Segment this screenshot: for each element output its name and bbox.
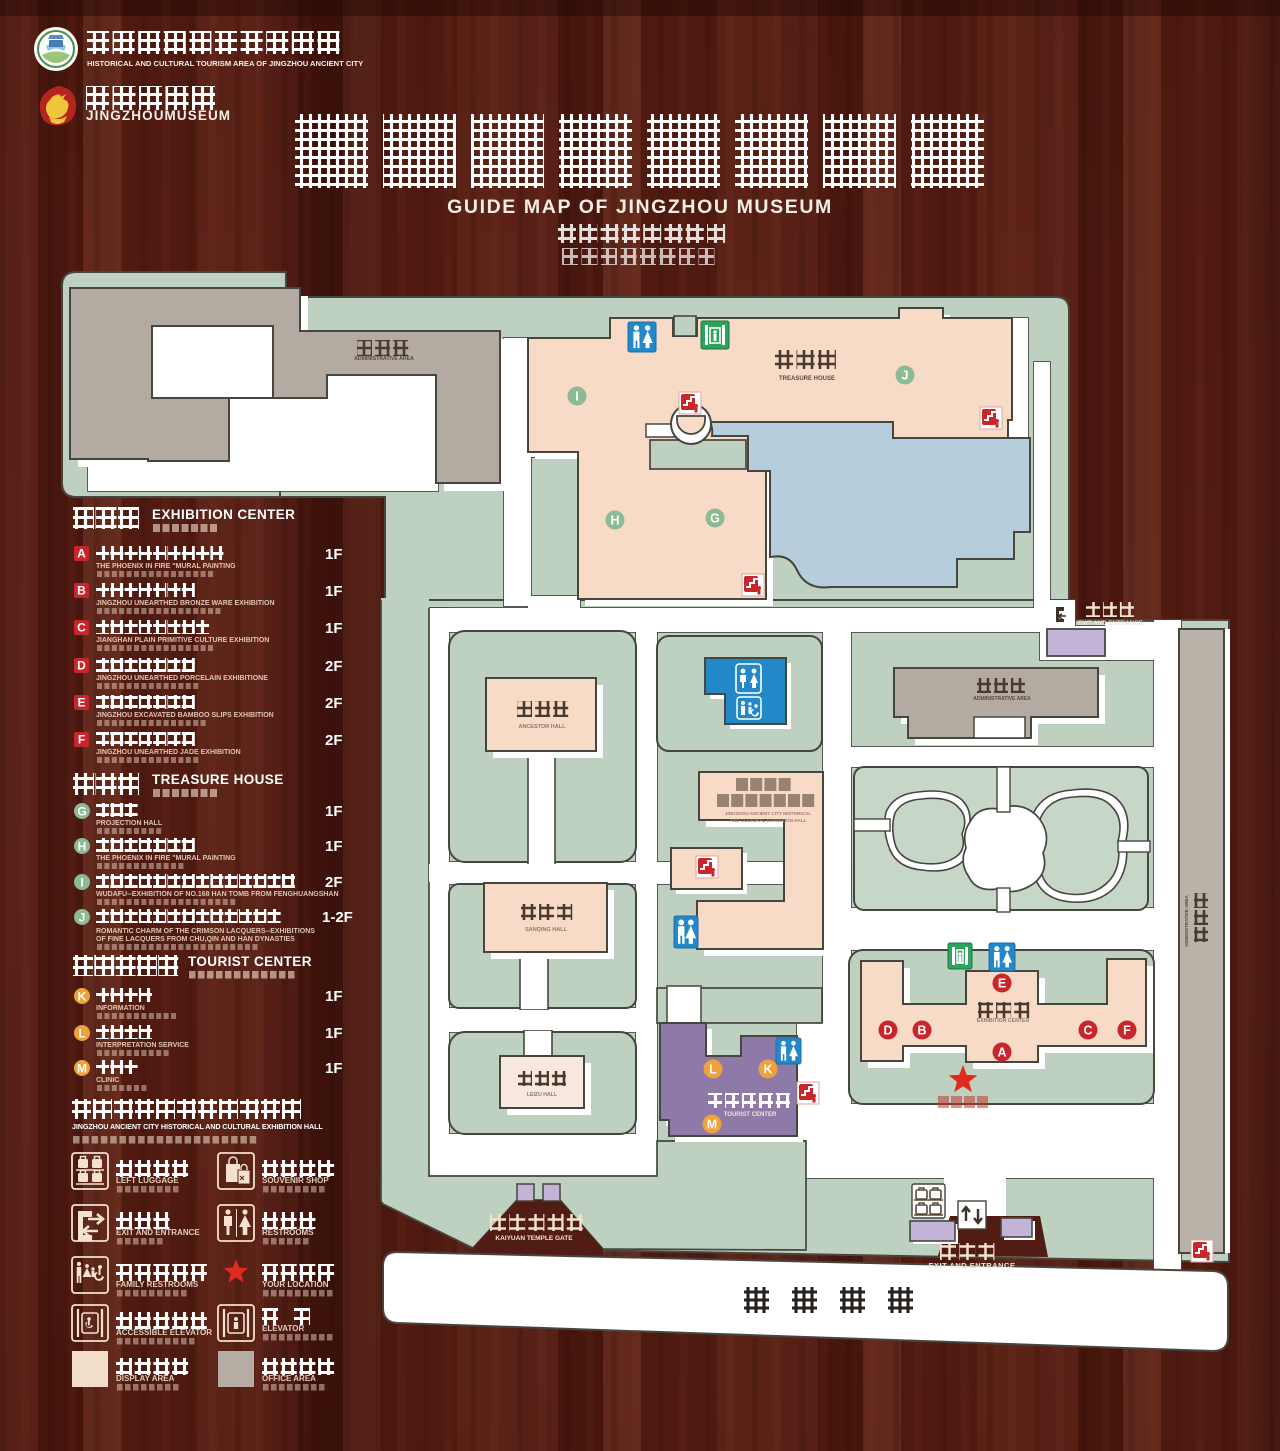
svg-text:WUDAFU--EXHIBITION OF NO.168 H: WUDAFU--EXHIBITION OF NO.168 HAN TOMB FR… xyxy=(96,891,339,898)
svg-text:SOUVENIR SHOP: SOUVENIR SHOP xyxy=(262,1176,329,1185)
svg-text:JINGZHOU EXCAVATED BAMBOO SLIP: JINGZHOU EXCAVATED BAMBOO SLIPS EXHIBITI… xyxy=(96,712,274,719)
svg-text:K: K xyxy=(78,989,87,1003)
svg-text:JINGZHOU UNEARTHED BRONZE WARE: JINGZHOU UNEARTHED BRONZE WARE EXHIBITIO… xyxy=(96,600,275,607)
svg-text:OF FINE LACQUERS FROM CHU,QIN: OF FINE LACQUERS FROM CHU,QIN AND HAN DY… xyxy=(96,936,295,943)
svg-text:2F: 2F xyxy=(325,658,343,675)
svg-text:TOURIST CENTER: TOURIST CENTER xyxy=(188,954,312,969)
svg-text:INFORMATION: INFORMATION xyxy=(96,1005,145,1012)
svg-text:A: A xyxy=(77,547,86,561)
svg-text:JINGZHOU UNEARTHED JADE EXHIBI: JINGZHOU UNEARTHED JADE EXHIBITION xyxy=(96,749,241,756)
svg-text:THE PHOENIX IN FIRE "MURAL PAI: THE PHOENIX IN FIRE "MURAL PAINTING xyxy=(96,855,236,862)
svg-text:D: D xyxy=(77,659,86,673)
svg-text:1F: 1F xyxy=(325,1025,343,1042)
svg-text:JINGZHOU UNEARTHED PORCELAIN E: JINGZHOU UNEARTHED PORCELAIN EXHIBITIONE xyxy=(96,675,268,682)
svg-text:ELEVATOR: ELEVATOR xyxy=(262,1324,304,1333)
svg-text:LEFT LUGGAGE: LEFT LUGGAGE xyxy=(116,1176,179,1185)
svg-text:EXHIBITION CENTER: EXHIBITION CENTER xyxy=(152,507,295,522)
svg-text:2F: 2F xyxy=(325,732,343,749)
svg-text:1F: 1F xyxy=(325,1060,343,1077)
svg-text:C: C xyxy=(77,621,86,635)
svg-text:M: M xyxy=(77,1061,87,1075)
svg-text:B: B xyxy=(77,584,86,598)
svg-text:1F: 1F xyxy=(325,838,343,855)
svg-text:FAMILY RESTROOMS: FAMILY RESTROOMS xyxy=(116,1280,199,1289)
svg-text:F: F xyxy=(78,733,85,747)
svg-text:YOUR LOCATION: YOUR LOCATION xyxy=(262,1280,329,1289)
svg-text:L: L xyxy=(78,1026,85,1040)
svg-text:H: H xyxy=(78,839,87,853)
svg-text:EXIT AND ENTRANCE: EXIT AND ENTRANCE xyxy=(116,1228,200,1237)
svg-text:1F: 1F xyxy=(325,546,343,563)
svg-text:DISPLAY AREA: DISPLAY AREA xyxy=(116,1374,175,1383)
svg-text:2F: 2F xyxy=(325,874,343,891)
svg-text:G: G xyxy=(77,804,86,818)
svg-text:ACCESSIBLE ELEVATOR: ACCESSIBLE ELEVATOR xyxy=(116,1328,212,1337)
svg-text:J: J xyxy=(79,910,86,924)
svg-text:ROMANTIC CHARM OF THE CRIMSON: ROMANTIC CHARM OF THE CRIMSON LACQUERS--… xyxy=(96,928,315,935)
svg-text:INTERPRETATION SERVICE: INTERPRETATION SERVICE xyxy=(96,1042,189,1049)
svg-text:1F: 1F xyxy=(325,988,343,1005)
svg-text:1F: 1F xyxy=(325,803,343,820)
svg-text:RESTROOMS: RESTROOMS xyxy=(262,1228,314,1237)
svg-text:THE PHOENIX IN FIRE "MURAL PAI: THE PHOENIX IN FIRE "MURAL PAINTING xyxy=(96,563,236,570)
svg-text:TREASURE HOUSE: TREASURE HOUSE xyxy=(152,772,284,787)
svg-text:1-2F: 1-2F xyxy=(322,909,353,926)
svg-text:1F: 1F xyxy=(325,620,343,637)
svg-text:JIANGHAN PLAIN PRIMITIVE CULTU: JIANGHAN PLAIN PRIMITIVE CULTURE EXHIBIT… xyxy=(96,637,269,644)
svg-text:OFFICE AREA: OFFICE AREA xyxy=(262,1374,316,1383)
svg-text:JINGZHOU ANCIENT CITY HISTORIC: JINGZHOU ANCIENT CITY HISTORICAL AND CUL… xyxy=(72,1122,323,1131)
svg-text:PROJECTION HALL: PROJECTION HALL xyxy=(96,820,163,827)
svg-text:E: E xyxy=(77,696,85,710)
svg-text:1F: 1F xyxy=(325,583,343,600)
svg-text:CLINIC: CLINIC xyxy=(96,1077,119,1084)
svg-text:I: I xyxy=(80,875,83,889)
svg-text:2F: 2F xyxy=(325,695,343,712)
